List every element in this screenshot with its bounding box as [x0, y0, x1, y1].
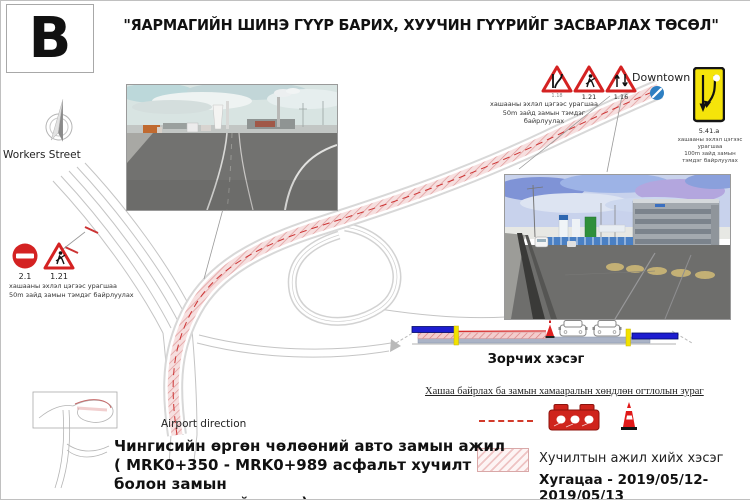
- lane-shift-note-line1: хашааны эхлэл цэгээс урагшаа: [675, 137, 745, 151]
- no-entry-sign: [11, 242, 39, 270]
- drawing-sheet: B "ЯАРМАГИЙН ШИНЭ ГҮҮР БАРИХ, ХУУЧИН ГҮҮ…: [0, 0, 750, 500]
- legend-title: Хашаа байрлах ба замын хамааралын хөндлө…: [425, 386, 704, 397]
- two-way-code: 1.16: [605, 93, 637, 101]
- work-note-line3: тэмдэглэгээний ажил): [114, 494, 514, 500]
- downtown-label: Downtown: [632, 71, 690, 84]
- roadworks-sign-top: [573, 65, 605, 93]
- photo-top: [126, 84, 338, 211]
- road-narrows-code: 1.18: [541, 93, 573, 99]
- road-narrows-sign: [541, 65, 573, 93]
- overview-inset: [19, 384, 129, 496]
- cross-section-diagram: [394, 317, 694, 357]
- top-sign-note: хашааны эхлэл цэгээс урагшаа 50m зайд за…: [487, 100, 601, 126]
- roadworks-code: 1.21: [45, 272, 73, 281]
- sheet-letter: B: [29, 6, 72, 71]
- top-sign-note-line2: 50m зайд замын тэмдэг байрлуулах: [487, 109, 601, 126]
- sheet-letter-box: B: [6, 4, 94, 73]
- downtown-marker-icon: [649, 85, 665, 101]
- no-entry-code: 2.1: [13, 272, 37, 281]
- loop-ramp: [292, 227, 397, 321]
- water-barrier-icon: [546, 402, 604, 434]
- work-note-line2: ( MRK0+350 - MRK0+989 асфальт хучилт бол…: [114, 456, 514, 494]
- roadworks-sign: [43, 242, 75, 270]
- left-sign-note: хашааны эхлэл цэгээс урагшаа 50m зайд за…: [9, 282, 139, 299]
- workers-street-label: Workers Street: [3, 149, 81, 161]
- lane-shift-note: хашааны эхлэл цэгээс урагшаа 100m зайд з…: [675, 137, 745, 165]
- paving-area-label: Хучилтын ажил хийх хэсэг: [539, 451, 723, 466]
- left-sign-note-line1: хашааны эхлэл цэгээс урагшаа: [9, 282, 139, 291]
- lane-shift-code: 5.41.a: [693, 127, 725, 135]
- page-title: "ЯАРМАГИЙН ШИНЭ ГҮҮР БАРИХ, ХУУЧИН ГҮҮРИ…: [114, 16, 728, 34]
- dashed-fence-line-icon: [479, 420, 533, 422]
- lane-shift-note-line2: 100m зайд замын тэмдэг байрлуулах: [675, 151, 745, 165]
- lane-shift-sign: [693, 67, 725, 125]
- traffic-cone-icon: [619, 401, 639, 435]
- left-sign-note-line2: 50m зайд замын тэмдэг байрлуулах: [9, 291, 139, 300]
- airport-direction-label: Airport direction: [161, 418, 246, 430]
- top-sign-note-line1: хашааны эхлэл цэгээс урагшаа: [487, 100, 601, 109]
- work-note: Чингисийн өргөн чөлөөний авто замын ажил…: [114, 437, 514, 500]
- photo-right: [504, 174, 731, 320]
- duration-label: Хугацаа - 2019/05/12-2019/05/13: [539, 472, 750, 500]
- carriageway-label: Зорчих хэсэг: [461, 352, 611, 367]
- work-note-line1: Чингисийн өргөн чөлөөний авто замын ажил: [114, 437, 514, 456]
